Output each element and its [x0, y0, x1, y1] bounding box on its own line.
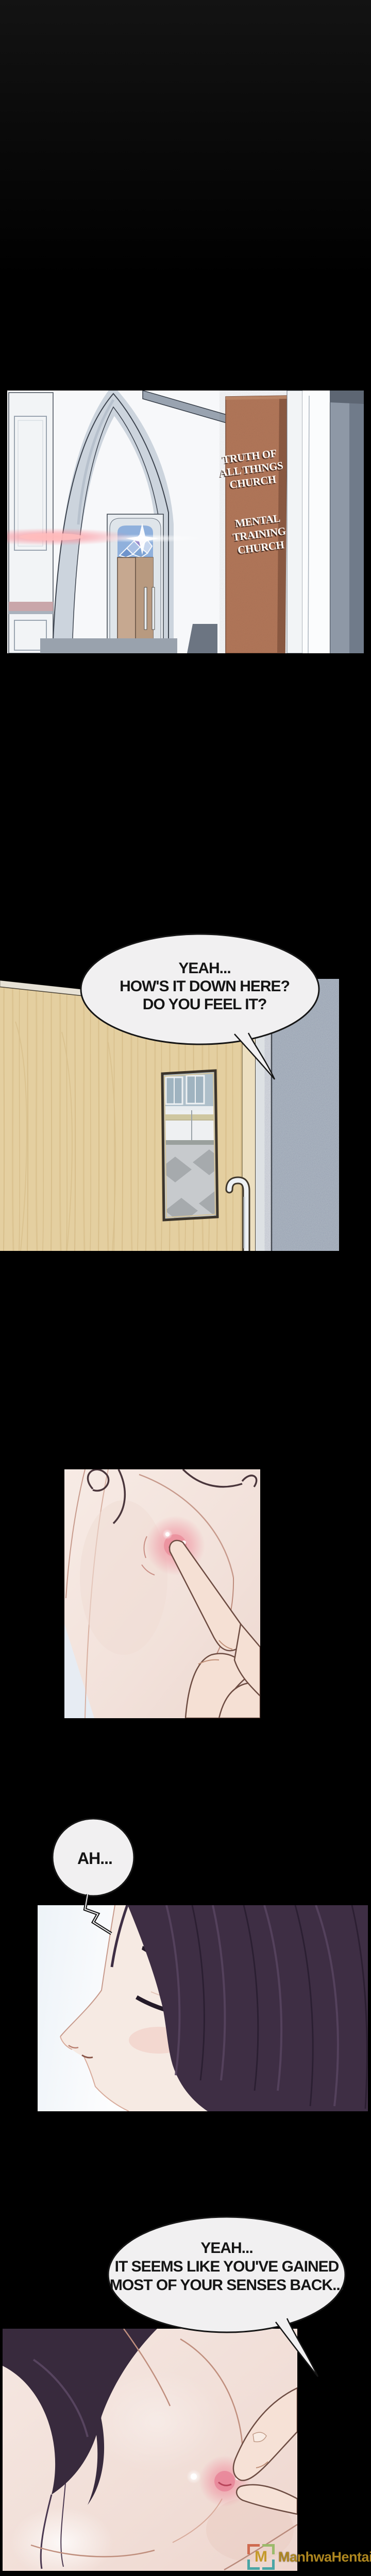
floor — [40, 638, 177, 653]
manhwahentai-watermark[interactable]: M ManhwaHentai — [247, 2544, 371, 2570]
watermark-site-name: ManhwaHentai — [278, 2549, 371, 2565]
panel-church-entrance: TRUTH OF ALL THINGS CHURCH MENTAL TRAINI… — [7, 391, 364, 653]
church-sign-board: TRUTH OF ALL THINGS CHURCH MENTAL TRAINI… — [216, 396, 294, 653]
door-handle-right — [152, 587, 155, 630]
webtoon-page: TRUTH OF ALL THINGS CHURCH MENTAL TRAINI… — [0, 0, 371, 2576]
bubble3-line3: MOST OF YOUR SENSES BACK... — [110, 2277, 344, 2294]
bubble1-line1: YEAH... — [178, 960, 230, 977]
door-handle-left — [144, 587, 147, 630]
logo-letter: M — [247, 2544, 275, 2570]
speech-bubble-1: YEAH... HOW'S IT DOWN HERE? DO YOU FEEL … — [72, 925, 325, 1090]
speech-bubble-3: YEAH... IT SEEMS LIKE YOU'VE GAINED MOST… — [106, 2213, 348, 2383]
top-black-gap — [0, 0, 371, 371]
left-pillar — [9, 393, 53, 653]
bubble3-line1: YEAH... — [200, 2240, 252, 2257]
panel-chest-closeup — [64, 1469, 260, 1718]
bubble1-line3: DO YOU FEEL IT? — [143, 996, 267, 1013]
manhwahentai-logo-icon: M — [247, 2544, 275, 2570]
bubble1-line2: HOW'S IT DOWN HERE? — [120, 978, 290, 995]
bubble3-line2: IT SEEMS LIKE YOU'VE GAINED — [115, 2258, 339, 2275]
speech-bubble-2: AH... — [49, 1816, 137, 1937]
bubble2-line1: AH... — [77, 1849, 112, 1868]
